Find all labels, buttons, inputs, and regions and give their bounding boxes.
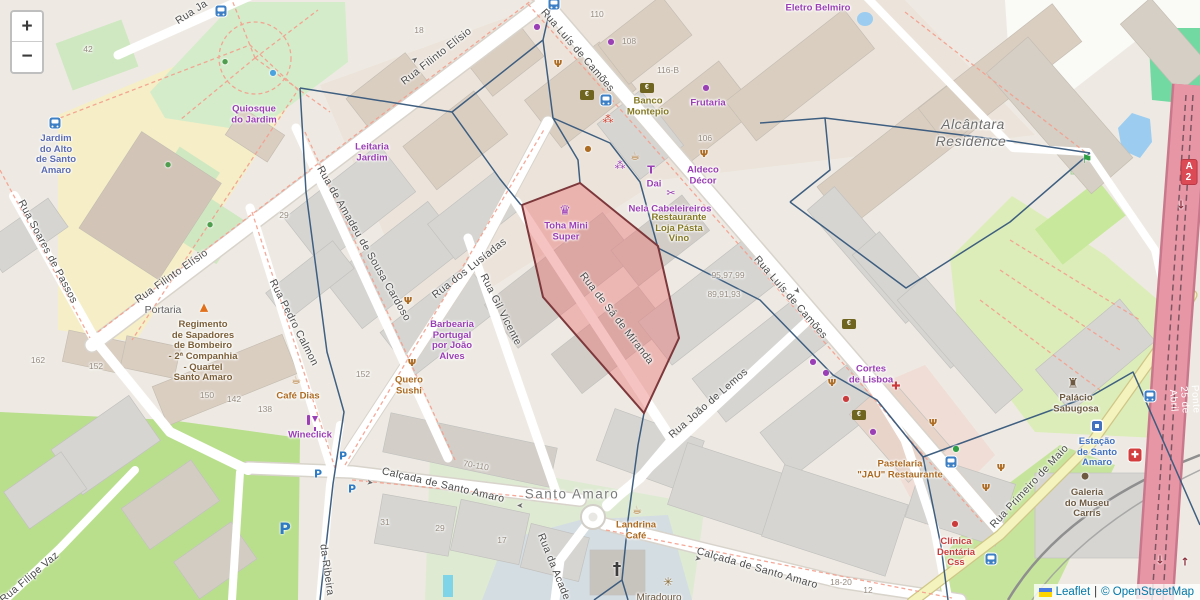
ukraine-flag-icon [1039, 588, 1052, 597]
leaflet-map[interactable]: Rua Ja Rua Filinto Elísio Rua Filinto El… [0, 0, 1200, 600]
attribution-separator: | [1094, 586, 1097, 598]
bus-stop-icon [216, 6, 227, 17]
train-station-icon [1092, 421, 1102, 431]
bus-stop-icon [50, 118, 61, 129]
openstreetmap-link[interactable]: © OpenStreetMap [1101, 586, 1194, 598]
bus-stop-icon [986, 554, 997, 565]
atm-icon: € [640, 83, 654, 93]
motorway-shield: A 2 [1181, 159, 1198, 185]
bus-stop-icon [601, 95, 612, 106]
zoom-in-button[interactable]: + [12, 12, 42, 42]
roundabout [581, 505, 605, 529]
bus-stop-icon [946, 457, 957, 468]
bus-stop-icon [549, 0, 560, 10]
atm-icon: € [842, 319, 856, 329]
leaflet-link[interactable]: Leaflet [1056, 586, 1091, 598]
attribution-bar: Leaflet | © OpenStreetMap [1034, 584, 1200, 600]
hospital-icon: ✚ [1129, 449, 1142, 462]
atm-icon: € [580, 90, 594, 100]
zoom-out-button[interactable]: − [12, 42, 42, 72]
map-tiles [0, 0, 1200, 600]
bus-stop-icon [1145, 391, 1156, 402]
zoom-control: + − [10, 10, 44, 74]
wine-shop-icon [306, 414, 318, 426]
atm-icon: € [852, 410, 866, 420]
